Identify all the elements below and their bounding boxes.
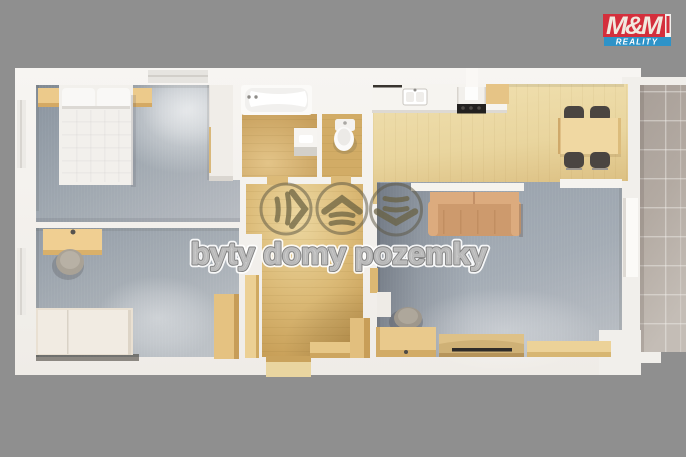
svg-text:M&M: M&M xyxy=(606,12,664,40)
svg-text:REALITY: REALITY xyxy=(616,38,659,47)
svg-text:byty domy pozemky: byty domy pozemky xyxy=(191,236,488,271)
